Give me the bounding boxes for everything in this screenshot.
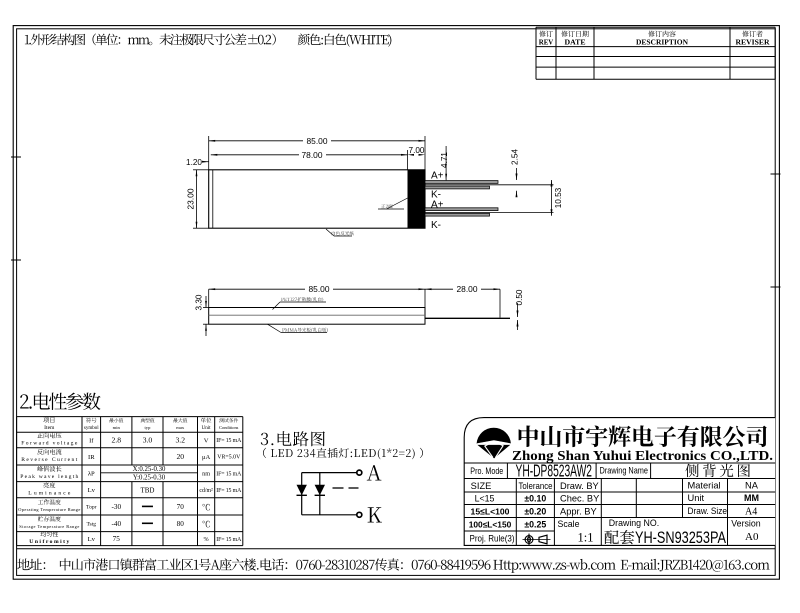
svg-text:Unit: Unit: [688, 493, 705, 503]
svg-text:28.00: 28.00: [457, 284, 478, 294]
svg-text:Drawing NO.: Drawing NO.: [609, 518, 659, 528]
svg-text:Tolerance: Tolerance: [519, 481, 553, 491]
svg-text:TBD: TBD: [140, 486, 154, 494]
svg-text:100≤L<150: 100≤L<150: [469, 520, 512, 530]
svg-text:A+: A+: [431, 199, 444, 210]
svg-text:±0.10: ±0.10: [524, 494, 546, 504]
svg-text:Unifromity: Unifromity: [29, 539, 69, 545]
svg-text:A4: A4: [745, 507, 757, 518]
svg-text:cd/m²: cd/m²: [199, 488, 213, 494]
svg-text:75: 75: [113, 535, 121, 543]
svg-text:If: If: [89, 437, 94, 444]
svg-text:Material: Material: [688, 481, 721, 491]
svg-text:Appr. BY: Appr. BY: [560, 506, 597, 516]
svg-text:Peak wave length: Peak wave length: [20, 474, 78, 480]
svg-text:1:1: 1:1: [578, 531, 594, 545]
svg-text:Lv: Lv: [88, 487, 96, 494]
svg-text:X:0.25-0.30: X:0.25-0.30: [133, 466, 166, 473]
svg-text:%: %: [204, 536, 209, 543]
svg-text:YH-DP8523AW2: YH-DP8523AW2: [516, 461, 593, 481]
svg-text:nm: nm: [202, 471, 210, 478]
svg-text:Draw. BY: Draw. BY: [560, 481, 599, 491]
svg-text:Drawing Name: Drawing Name: [600, 466, 649, 477]
svg-text:Luminance: Luminance: [28, 490, 71, 496]
svg-text:REV: REV: [539, 39, 554, 47]
svg-text:-40: -40: [111, 520, 121, 528]
svg-text:1.20: 1.20: [186, 158, 202, 167]
svg-text:IF= 15 mA: IF= 15 mA: [216, 488, 242, 494]
svg-text:Lv: Lv: [88, 536, 96, 543]
svg-text:-30: -30: [111, 503, 121, 511]
svg-text:2.8: 2.8: [112, 436, 122, 445]
svg-text:DATE: DATE: [565, 39, 586, 47]
svg-text:7.00: 7.00: [409, 146, 425, 155]
svg-text:±0.25: ±0.25: [524, 520, 546, 530]
svg-text:MM: MM: [744, 493, 759, 503]
svg-text:80: 80: [177, 520, 185, 528]
svg-text:IR: IR: [88, 454, 95, 461]
svg-text:70: 70: [177, 503, 185, 511]
svg-text:L<15: L<15: [475, 494, 495, 504]
svg-text:85.00: 85.00: [309, 284, 330, 294]
svg-text:Operating Temperature Range: Operating Temperature Range: [18, 507, 80, 512]
svg-text:DESCRIPTION: DESCRIPTION: [636, 39, 688, 47]
svg-text:μA: μA: [202, 454, 211, 461]
svg-text:YH-SN93253PA: YH-SN93253PA: [635, 528, 726, 547]
svg-text:REVISER: REVISER: [736, 39, 771, 47]
svg-text:78.00: 78.00: [302, 150, 323, 160]
svg-text:Reverse Current: Reverse Current: [21, 457, 77, 463]
svg-text:85.00: 85.00: [307, 136, 328, 146]
svg-text:4.71: 4.71: [440, 152, 449, 168]
svg-text:IF= 15 mA: IF= 15 mA: [216, 438, 242, 444]
svg-text:Pro. Mode: Pro. Mode: [470, 466, 503, 476]
svg-text:K-: K-: [431, 220, 441, 231]
svg-text:2.54: 2.54: [511, 149, 520, 165]
svg-text:20: 20: [176, 452, 184, 461]
svg-text:A0: A0: [745, 531, 759, 543]
svg-text:VR=5.0V: VR=5.0V: [217, 455, 241, 461]
svg-text:Storage Temperature Range: Storage Temperature Range: [19, 524, 79, 529]
svg-text:10.53: 10.53: [554, 187, 563, 208]
svg-text:Conditions: Conditions: [219, 425, 239, 430]
svg-text:NA: NA: [745, 481, 759, 491]
svg-text:Tstg: Tstg: [87, 522, 97, 528]
svg-text:Draw. Size: Draw. Size: [688, 506, 728, 516]
svg-text:3.30: 3.30: [195, 294, 204, 310]
svg-text:Chec. BY: Chec. BY: [560, 494, 599, 504]
svg-text:Y:0.25-0.30: Y:0.25-0.30: [133, 475, 166, 482]
svg-text:IF= 15 mA: IF= 15 mA: [216, 472, 242, 478]
svg-text:3.0: 3.0: [143, 436, 153, 445]
svg-text:IF= 15 mA: IF= 15 mA: [216, 537, 242, 543]
svg-text:15≤L<100: 15≤L<100: [471, 506, 510, 516]
svg-text:typ: typ: [145, 425, 152, 430]
svg-text:Scale: Scale: [558, 519, 580, 529]
svg-text:SIZE: SIZE: [471, 481, 492, 491]
svg-text:min: min: [113, 425, 121, 430]
svg-text:V: V: [204, 437, 209, 444]
svg-text:λP: λP: [88, 471, 95, 478]
svg-text:max: max: [176, 425, 185, 430]
svg-text:Unit: Unit: [202, 426, 212, 431]
svg-text:0.50: 0.50: [515, 289, 524, 305]
svg-text:Topr: Topr: [86, 505, 97, 511]
svg-text:symbol: symbol: [84, 426, 99, 431]
svg-text:23.00: 23.00: [186, 188, 196, 209]
svg-text:Version: Version: [731, 519, 760, 529]
svg-text:A+: A+: [431, 171, 444, 182]
svg-text:±0.20: ±0.20: [524, 506, 546, 516]
svg-text:Item: Item: [44, 425, 55, 431]
svg-text:Proj. Rule(3): Proj. Rule(3): [470, 534, 515, 544]
svg-text:3.2: 3.2: [176, 436, 186, 445]
